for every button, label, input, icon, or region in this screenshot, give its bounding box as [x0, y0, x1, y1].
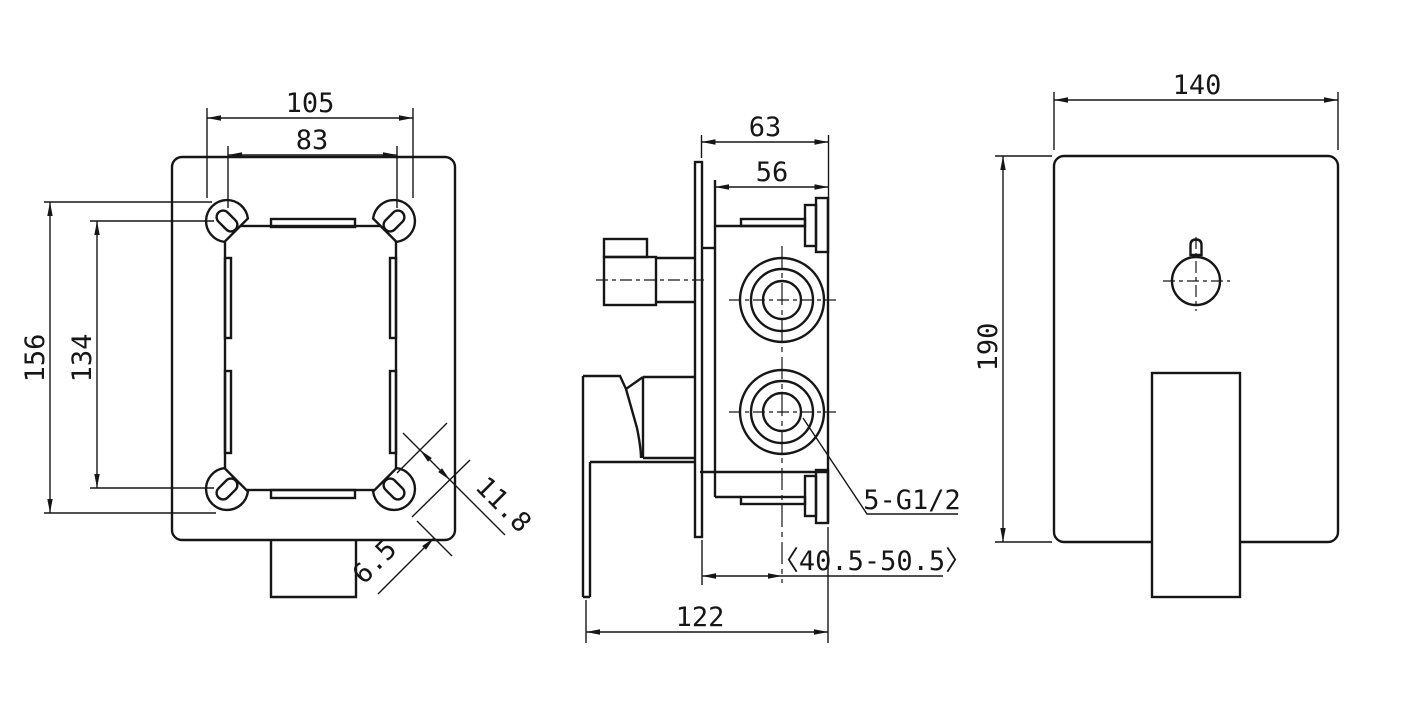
dim-83-label: 83 [296, 125, 329, 156]
bottom-spout-tab [271, 541, 356, 597]
dim-140-label: 140 [1173, 70, 1222, 101]
diverter-knob-tip [604, 239, 647, 257]
bottom-flange-cap [816, 470, 828, 523]
top-bracket-bar [741, 219, 805, 226]
lever-base [590, 377, 695, 462]
dim-134-label: 134 [67, 334, 98, 383]
side-view-valve-body [583, 162, 836, 597]
lever-shoulder [626, 389, 641, 458]
wall-plate-edge [695, 162, 702, 537]
thread-spec-label: 5-G1/2 [863, 485, 961, 516]
bottom-bracket-bar [741, 497, 805, 504]
dim-190-label: 190 [973, 323, 1004, 372]
dim-56-label: 56 [756, 157, 789, 188]
top-flange [805, 205, 816, 246]
diverter-knob-body [604, 257, 656, 305]
lever-top-edge [583, 376, 643, 389]
technical-drawing-canvas: 105 83 156 134 11.8 6.5 63 56 〈40.5- [0, 0, 1402, 716]
bottom-flange [805, 476, 816, 516]
dim-11.8-label: 11.8 [469, 471, 537, 539]
front-view-rough-in-box [172, 157, 455, 597]
lever-grip [583, 376, 590, 597]
trim-plate-view [1054, 156, 1338, 597]
dim-156-label: 156 [20, 334, 51, 383]
drawing-page: 105 83 156 134 11.8 6.5 63 56 〈40.5- [0, 0, 1402, 716]
dim-63-label: 63 [749, 112, 782, 143]
dim-40.5-50.5-label: 〈40.5-50.5〉 [772, 546, 972, 577]
trim-lever-handle [1152, 373, 1240, 597]
top-flange-cap [816, 198, 828, 252]
dim-105-label: 105 [286, 88, 335, 119]
dim-122-label: 122 [676, 602, 725, 633]
